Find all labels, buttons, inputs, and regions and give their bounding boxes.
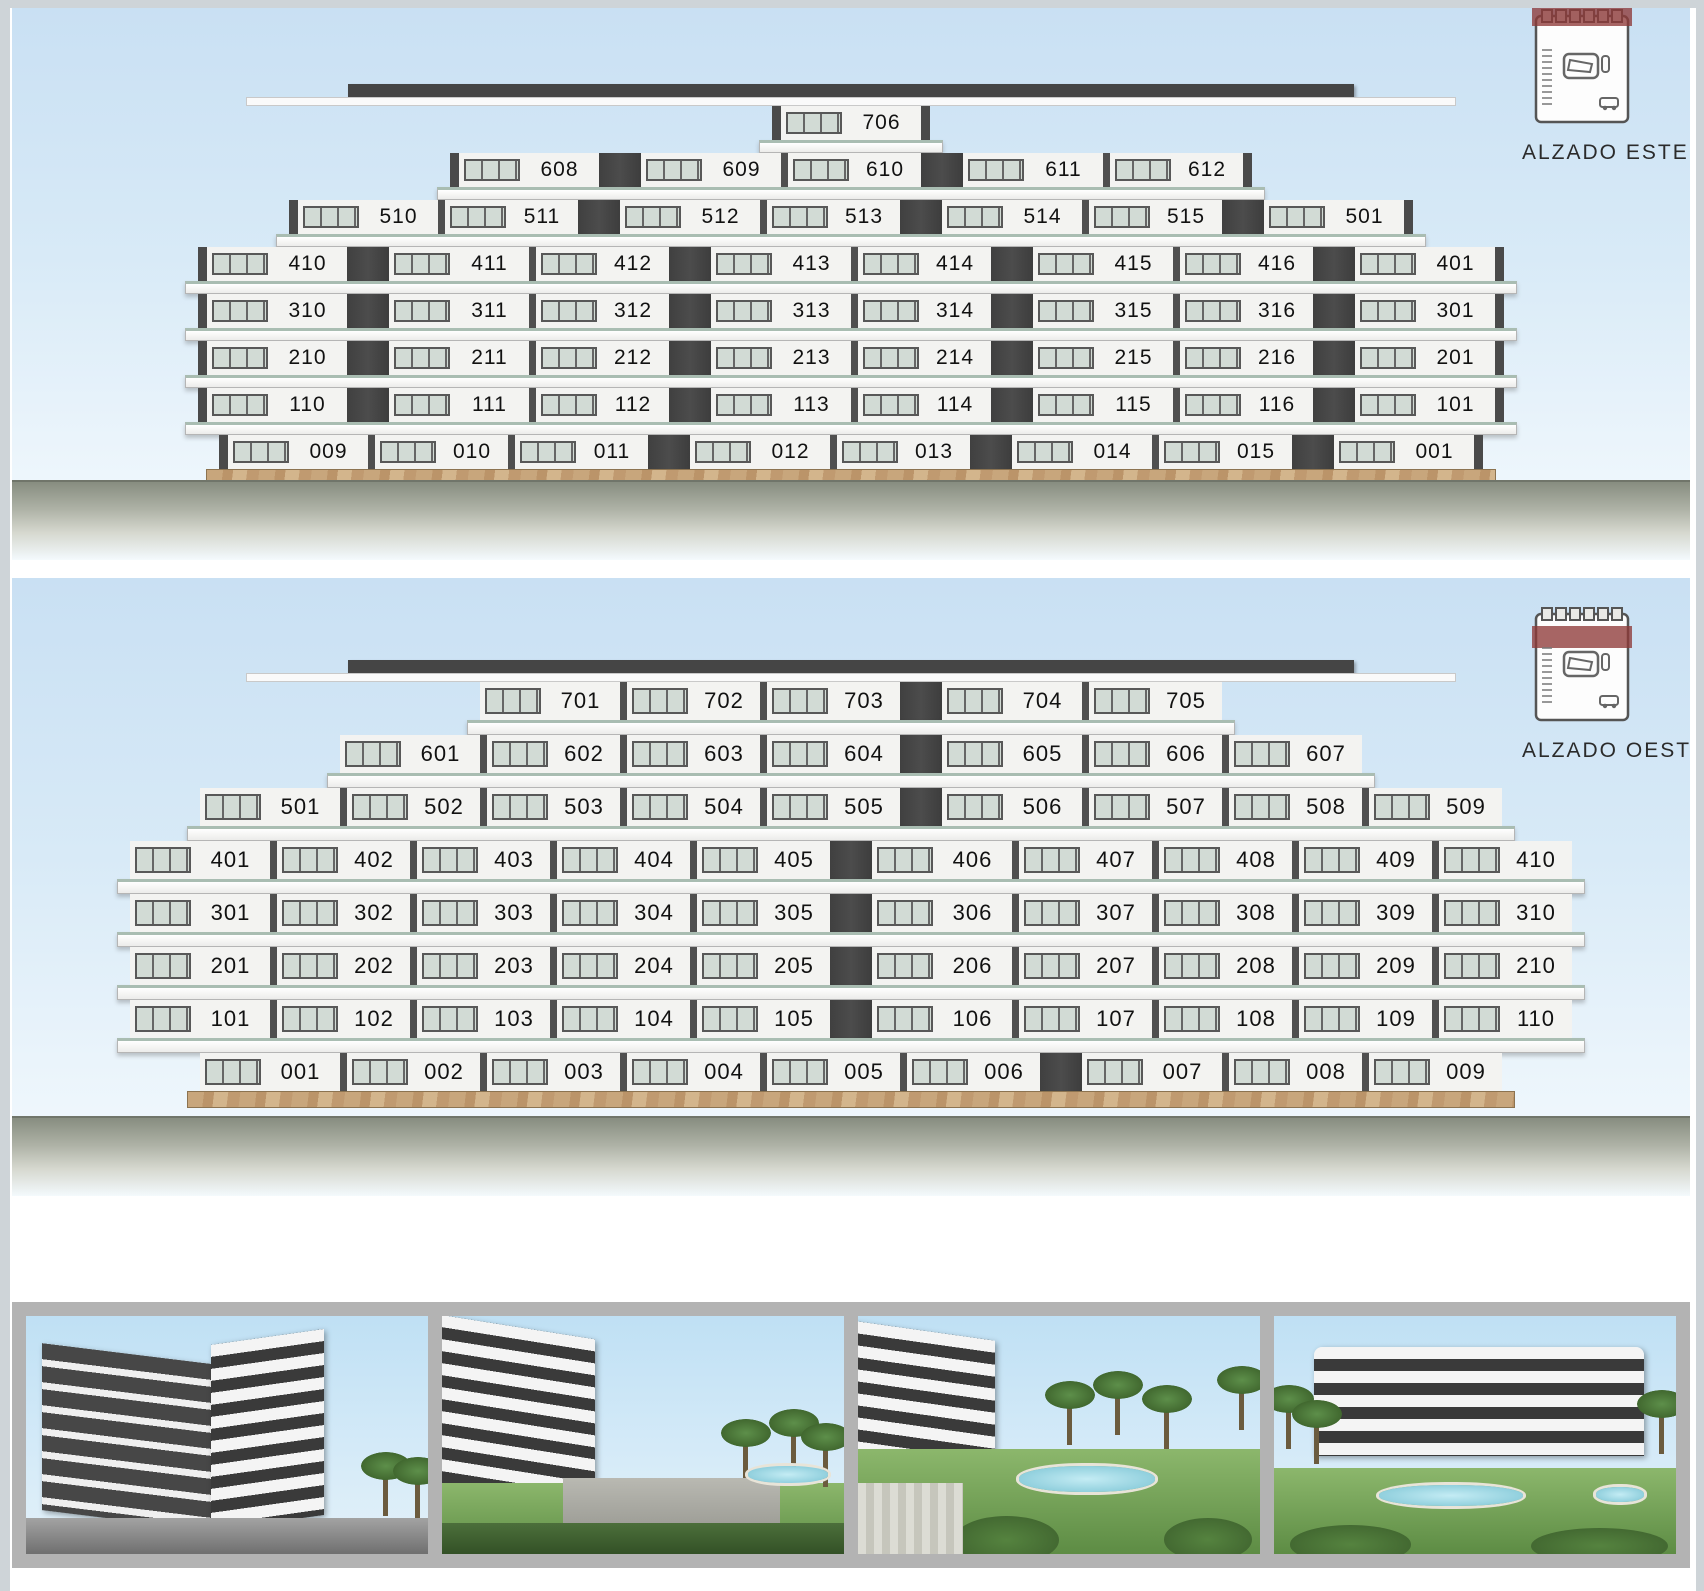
- apartment-unit: 106: [872, 1000, 1012, 1038]
- apartment-unit: 004: [620, 1053, 760, 1091]
- floor-row: 310311312313314315316301: [198, 294, 1504, 341]
- apartment-unit: 701: [480, 682, 620, 720]
- unit-number-label: 011: [576, 440, 648, 464]
- window-icon: [1185, 347, 1241, 369]
- unit-number-label: 408: [1220, 847, 1292, 873]
- building-shape: [42, 1343, 219, 1531]
- window-icon: [842, 441, 898, 463]
- road: [26, 1518, 428, 1554]
- window-icon: [772, 794, 828, 820]
- unit-number-label: 113: [772, 393, 851, 417]
- bush: [1290, 1525, 1411, 1554]
- apartment-unit: 501: [200, 788, 340, 826]
- key-plan-icon: [1522, 8, 1642, 130]
- stair-core: [830, 947, 872, 985]
- apartment-unit: 108: [1152, 1000, 1292, 1038]
- unit-number-label: 510: [359, 205, 438, 229]
- window-icon: [1024, 847, 1080, 873]
- stair-core: [1222, 200, 1264, 234]
- apartment-unit: 312: [529, 294, 669, 328]
- unit-number-label: 410: [1500, 847, 1572, 873]
- unit-number-label: 514: [1003, 205, 1082, 229]
- unit-number-label: 314: [919, 299, 991, 323]
- window-icon: [520, 441, 576, 463]
- window-icon: [912, 1059, 968, 1085]
- unit-number-label: 605: [1003, 741, 1082, 767]
- unit-number-label: 612: [1171, 158, 1243, 182]
- window-icon: [352, 1059, 408, 1085]
- window-icon: [1164, 1006, 1220, 1032]
- unit-number-label: 513: [828, 205, 900, 229]
- window-icon: [492, 794, 548, 820]
- stair-core: [900, 682, 942, 720]
- site-key-plan-west: ALZADO OESTE: [1522, 600, 1642, 763]
- apartment-unit: 308: [1152, 894, 1292, 932]
- floor-units: 201202203204205206207208209210: [130, 947, 1572, 985]
- apartment-unit: 012: [690, 435, 830, 469]
- unit-number-label: 309: [1360, 900, 1432, 926]
- window-icon: [1444, 953, 1500, 979]
- stair-core: [599, 153, 641, 187]
- pool: [748, 1466, 828, 1483]
- apartment-unit: 216: [1173, 341, 1313, 375]
- unit-number-label: 202: [338, 953, 410, 979]
- apartment-unit: 307: [1012, 894, 1152, 932]
- apartment-unit: 001: [200, 1053, 340, 1091]
- unit-number-label: 602: [548, 741, 620, 767]
- window-icon: [135, 847, 191, 873]
- apartment-unit: 210: [1432, 947, 1572, 985]
- stair-core: [991, 388, 1033, 422]
- unit-number-label: 308: [1220, 900, 1292, 926]
- east-elevation-label: ALZADO ESTE: [1522, 141, 1642, 165]
- unit-number-label: 009: [289, 440, 368, 464]
- window-icon: [282, 1006, 338, 1032]
- window-icon: [1094, 206, 1150, 228]
- window-icon: [947, 206, 1003, 228]
- apartment-unit: 612: [1103, 153, 1243, 187]
- apartment-unit: 203: [410, 947, 550, 985]
- stair-core: [1313, 294, 1355, 328]
- unit-number-label: 201: [1416, 346, 1495, 370]
- window-icon: [212, 300, 268, 322]
- palm-tree: [383, 1472, 388, 1516]
- apartment-unit: 212: [529, 341, 669, 375]
- window-icon: [282, 900, 338, 926]
- unit-number-label: 607: [1290, 741, 1362, 767]
- unit-number-label: 606: [1150, 741, 1222, 767]
- unit-number-label: 105: [758, 1006, 830, 1032]
- unit-number-label: 515: [1150, 205, 1222, 229]
- east-elevation-panel: 7066086096106116125105115125135145155014…: [12, 8, 1690, 560]
- window-icon: [863, 253, 919, 275]
- window-icon: [702, 900, 758, 926]
- window-icon: [1185, 394, 1241, 416]
- unit-number-label: 004: [688, 1059, 760, 1085]
- window-icon: [541, 394, 597, 416]
- floor-row: 210211212213214215216201: [198, 341, 1504, 388]
- window-icon: [1164, 847, 1220, 873]
- unit-number-label: 111: [450, 393, 529, 417]
- unit-number-label: 608: [520, 158, 599, 182]
- apartment-unit: 207: [1012, 947, 1152, 985]
- stone-base: [187, 1091, 1515, 1108]
- unit-number-label: 106: [933, 1006, 1012, 1032]
- palm-tree: [1164, 1405, 1169, 1449]
- apartment-unit: 501: [1264, 200, 1404, 234]
- ground-line: [12, 1116, 1690, 1196]
- window-icon: [1024, 900, 1080, 926]
- window-icon: [562, 847, 618, 873]
- unit-number-label: 115: [1094, 393, 1173, 417]
- palm-tree: [1314, 1420, 1319, 1464]
- apartment-unit: 109: [1292, 1000, 1432, 1038]
- apartment-unit: 104: [550, 1000, 690, 1038]
- window-icon: [1269, 206, 1325, 228]
- apartment-unit: 213: [711, 341, 851, 375]
- page: 7066086096106116125105115125135145155014…: [0, 0, 1704, 1591]
- stair-core: [830, 894, 872, 932]
- floor-units: 706: [772, 106, 930, 140]
- unit-number-label: 201: [191, 953, 270, 979]
- apartment-unit: 214: [851, 341, 991, 375]
- building-shape: [211, 1329, 324, 1530]
- apartment-unit: 407: [1012, 841, 1152, 879]
- apartment-unit: 315: [1033, 294, 1173, 328]
- render-photo-promenade: [442, 1316, 844, 1554]
- apartment-unit: 309: [1292, 894, 1432, 932]
- window-icon: [1304, 847, 1360, 873]
- unit-number-label: 416: [1241, 252, 1313, 276]
- window-icon: [1038, 394, 1094, 416]
- apartment-unit: 404: [550, 841, 690, 879]
- window-icon: [492, 1059, 548, 1085]
- window-icon: [1185, 300, 1241, 322]
- apartment-unit: 208: [1152, 947, 1292, 985]
- floor-row: 301302303304305306307308309310: [130, 894, 1572, 947]
- floor-units: 101102103104105106107108109110: [130, 1000, 1572, 1038]
- unit-number-label: 414: [919, 252, 991, 276]
- unit-number-label: 204: [618, 953, 690, 979]
- apartment-unit: 505: [760, 788, 900, 826]
- apartment-unit: 702: [620, 682, 760, 720]
- window-icon: [1094, 741, 1150, 767]
- apartment-unit: 011: [508, 435, 648, 469]
- apartment-unit: 305: [690, 894, 830, 932]
- apartment-unit: 105: [690, 1000, 830, 1038]
- unit-number-label: 103: [478, 1006, 550, 1032]
- unit-number-label: 303: [478, 900, 550, 926]
- apartment-unit: 202: [270, 947, 410, 985]
- window-icon: [772, 741, 828, 767]
- apartment-unit: 416: [1173, 247, 1313, 281]
- stair-core: [921, 153, 963, 187]
- stair-core: [900, 735, 942, 773]
- apartment-unit: 116: [1173, 388, 1313, 422]
- apartment-unit: 704: [942, 682, 1082, 720]
- window-icon: [450, 206, 506, 228]
- apartment-unit: 205: [690, 947, 830, 985]
- apartment-unit: 113: [711, 388, 851, 422]
- apartment-unit: 215: [1033, 341, 1173, 375]
- unit-number-label: 415: [1094, 252, 1173, 276]
- highlighted-facade-band: [1532, 8, 1632, 26]
- apartment-unit: 602: [480, 735, 620, 773]
- pool: [1596, 1487, 1644, 1501]
- window-icon: [1444, 847, 1500, 873]
- window-icon: [632, 688, 688, 714]
- balcony-slab: [117, 879, 1585, 894]
- window-icon: [1360, 253, 1416, 275]
- window-icon: [345, 741, 401, 767]
- balcony-slab: [117, 1038, 1585, 1053]
- balcony-slab: [759, 140, 943, 153]
- floor-row: 001002003004005006007008009: [200, 1053, 1502, 1108]
- apartment-unit: 403: [410, 841, 550, 879]
- apartment-unit: 301: [130, 894, 270, 932]
- pool: [1379, 1485, 1524, 1506]
- window-icon: [233, 441, 289, 463]
- unit-number-label: 301: [191, 900, 270, 926]
- window-icon: [772, 1059, 828, 1085]
- palm-tree: [823, 1443, 828, 1487]
- floor-units: 501502503504505506507508509: [200, 788, 1502, 826]
- window-icon: [1339, 441, 1395, 463]
- unit-number-label: 601: [401, 741, 480, 767]
- unit-number-label: 112: [597, 393, 669, 417]
- stair-core: [991, 294, 1033, 328]
- window-icon: [1185, 253, 1241, 275]
- window-icon: [1094, 688, 1150, 714]
- stair-core: [1313, 388, 1355, 422]
- apartment-unit: 607: [1222, 735, 1362, 773]
- window-icon: [1164, 953, 1220, 979]
- unit-number-label: 413: [772, 252, 851, 276]
- apartment-unit: 007: [1082, 1053, 1222, 1091]
- unit-number-label: 214: [919, 346, 991, 370]
- window-icon: [1164, 900, 1220, 926]
- window-icon: [632, 741, 688, 767]
- balcony-slab: [437, 187, 1265, 200]
- window-icon: [422, 953, 478, 979]
- unit-number-label: 405: [758, 847, 830, 873]
- unit-number-label: 401: [191, 847, 270, 873]
- balcony-slab: [327, 773, 1375, 788]
- unit-number-label: 002: [408, 1059, 480, 1085]
- apartment-unit: 103: [410, 1000, 550, 1038]
- apartment-unit: 303: [410, 894, 550, 932]
- floor-row: 501502503504505506507508509: [200, 788, 1502, 841]
- window-icon: [877, 847, 933, 873]
- floor-units: 410411412413414415416401: [198, 247, 1504, 281]
- unit-number-label: 302: [338, 900, 410, 926]
- unit-number-label: 412: [597, 252, 669, 276]
- unit-number-label: 706: [842, 111, 921, 135]
- window-icon: [793, 159, 849, 181]
- balcony-slab: [117, 985, 1585, 1000]
- floor-units: 510511512513514515501: [289, 200, 1413, 234]
- unit-number-label: 509: [1430, 794, 1502, 820]
- window-icon: [492, 741, 548, 767]
- window-icon: [772, 688, 828, 714]
- site-key-plan-east: ALZADO ESTE: [1522, 8, 1642, 165]
- window-icon: [625, 206, 681, 228]
- unit-number-label: 207: [1080, 953, 1152, 979]
- stair-core: [1313, 341, 1355, 375]
- window-icon: [877, 900, 933, 926]
- apartment-unit: 015: [1152, 435, 1292, 469]
- apartment-unit: 310: [207, 294, 347, 328]
- window-icon: [205, 1059, 261, 1085]
- window-icon: [1038, 253, 1094, 275]
- apartment-unit: 211: [389, 341, 529, 375]
- stair-core: [970, 435, 1012, 469]
- window-icon: [632, 1059, 688, 1085]
- window-icon: [716, 394, 772, 416]
- unit-number-label: 401: [1416, 252, 1495, 276]
- apartment-unit: 609: [641, 153, 781, 187]
- apartment-unit: 010: [368, 435, 508, 469]
- unit-number-label: 206: [933, 953, 1012, 979]
- unit-number-label: 511: [506, 205, 578, 229]
- floor-row: 510511512513514515501: [289, 200, 1413, 247]
- palm-tree: [1659, 1410, 1664, 1454]
- palm-tree: [743, 1439, 748, 1483]
- apartment-unit: 304: [550, 894, 690, 932]
- apartment-unit: 415: [1033, 247, 1173, 281]
- window-icon: [394, 347, 450, 369]
- apartment-unit: 003: [480, 1053, 620, 1091]
- palm-tree: [1286, 1405, 1291, 1449]
- pool: [1019, 1466, 1156, 1492]
- unit-number-label: 603: [688, 741, 760, 767]
- ground-line: [12, 480, 1690, 560]
- window-icon: [422, 1006, 478, 1032]
- stair-core: [347, 388, 389, 422]
- apartment-unit: 013: [830, 435, 970, 469]
- balcony-slab: [187, 826, 1515, 841]
- apartment-unit: 102: [270, 1000, 410, 1038]
- apartment-unit: 409: [1292, 841, 1432, 879]
- apartment-unit: 310: [1432, 894, 1572, 932]
- apartment-unit: 006: [900, 1053, 1040, 1091]
- apartment-unit: 009: [228, 435, 368, 469]
- unit-number-label: 409: [1360, 847, 1432, 873]
- window-icon: [1017, 441, 1073, 463]
- apartment-unit: 210: [207, 341, 347, 375]
- unit-number-label: 705: [1150, 688, 1222, 714]
- apartment-unit: 608: [459, 153, 599, 187]
- apartment-unit: 306: [872, 894, 1012, 932]
- apartment-unit: 204: [550, 947, 690, 985]
- unit-number-label: 104: [618, 1006, 690, 1032]
- unit-number-label: 611: [1024, 158, 1103, 182]
- window-icon: [135, 900, 191, 926]
- window-icon: [541, 300, 597, 322]
- render-photo-garden-pool: [858, 1316, 1260, 1554]
- key-plan-icon: [1522, 600, 1642, 728]
- floor-units: 401402403404405406407408409410: [130, 841, 1572, 879]
- palm-tree: [1115, 1391, 1120, 1435]
- unit-number-label: 212: [597, 346, 669, 370]
- palm-tree: [1067, 1401, 1072, 1445]
- unit-number-label: 502: [408, 794, 480, 820]
- window-icon: [863, 300, 919, 322]
- floor-units: 009010011012013014015001: [219, 435, 1483, 469]
- apartment-unit: 606: [1082, 735, 1222, 773]
- window-icon: [282, 847, 338, 873]
- floor-row: 706: [772, 106, 930, 153]
- apartment-unit: 316: [1173, 294, 1313, 328]
- window-icon: [702, 953, 758, 979]
- window-icon: [947, 794, 1003, 820]
- palm-tree: [1239, 1386, 1244, 1430]
- roof-slab: [246, 97, 1456, 106]
- stair-core: [1040, 1053, 1082, 1091]
- window-icon: [380, 441, 436, 463]
- window-icon: [1087, 1059, 1143, 1085]
- west-elevation-label: ALZADO OESTE: [1522, 739, 1642, 763]
- stair-core: [578, 200, 620, 234]
- unit-number-label: 310: [268, 299, 347, 323]
- window-icon: [1234, 1059, 1290, 1085]
- apartment-unit: 201: [130, 947, 270, 985]
- stair-core: [648, 435, 690, 469]
- apartment-unit: 504: [620, 788, 760, 826]
- window-icon: [562, 1006, 618, 1032]
- unit-number-label: 110: [268, 393, 347, 417]
- apartment-unit: 110: [207, 388, 347, 422]
- balcony-slab: [185, 422, 1517, 435]
- floor-row: 101102103104105106107108109110: [130, 1000, 1572, 1053]
- unit-number-label: 215: [1094, 346, 1173, 370]
- unit-number-label: 307: [1080, 900, 1152, 926]
- unit-number-label: 610: [849, 158, 921, 182]
- apartment-unit: 008: [1222, 1053, 1362, 1091]
- window-icon: [1304, 900, 1360, 926]
- apartment-unit: 605: [942, 735, 1082, 773]
- window-icon: [947, 741, 1003, 767]
- unit-number-label: 108: [1220, 1006, 1292, 1032]
- apartment-unit: 610: [781, 153, 921, 187]
- render-photo-building-pool: [1274, 1316, 1676, 1554]
- window-icon: [646, 159, 702, 181]
- unit-number-label: 210: [268, 346, 347, 370]
- window-icon: [303, 206, 359, 228]
- apartment-unit: 510: [298, 200, 438, 234]
- floor-row: 201202203204205206207208209210: [130, 947, 1572, 1000]
- stair-core: [669, 341, 711, 375]
- balcony-slab: [467, 720, 1235, 735]
- unit-number-label: 006: [968, 1059, 1040, 1085]
- unit-number-label: 101: [1416, 393, 1495, 417]
- apartment-unit: 411: [389, 247, 529, 281]
- unit-number-label: 010: [436, 440, 508, 464]
- unit-number-label: 209: [1360, 953, 1432, 979]
- window-icon: [1038, 300, 1094, 322]
- window-icon: [394, 394, 450, 416]
- apartment-unit: 002: [340, 1053, 480, 1091]
- unit-number-label: 213: [772, 346, 851, 370]
- stair-core: [669, 388, 711, 422]
- palm-tree: [415, 1477, 420, 1521]
- unit-number-label: 402: [338, 847, 410, 873]
- unit-number-label: 311: [450, 299, 529, 323]
- window-icon: [1444, 900, 1500, 926]
- apartment-unit: 408: [1152, 841, 1292, 879]
- floor-row: 601602603604605606607: [340, 735, 1362, 788]
- unit-number-label: 013: [898, 440, 970, 464]
